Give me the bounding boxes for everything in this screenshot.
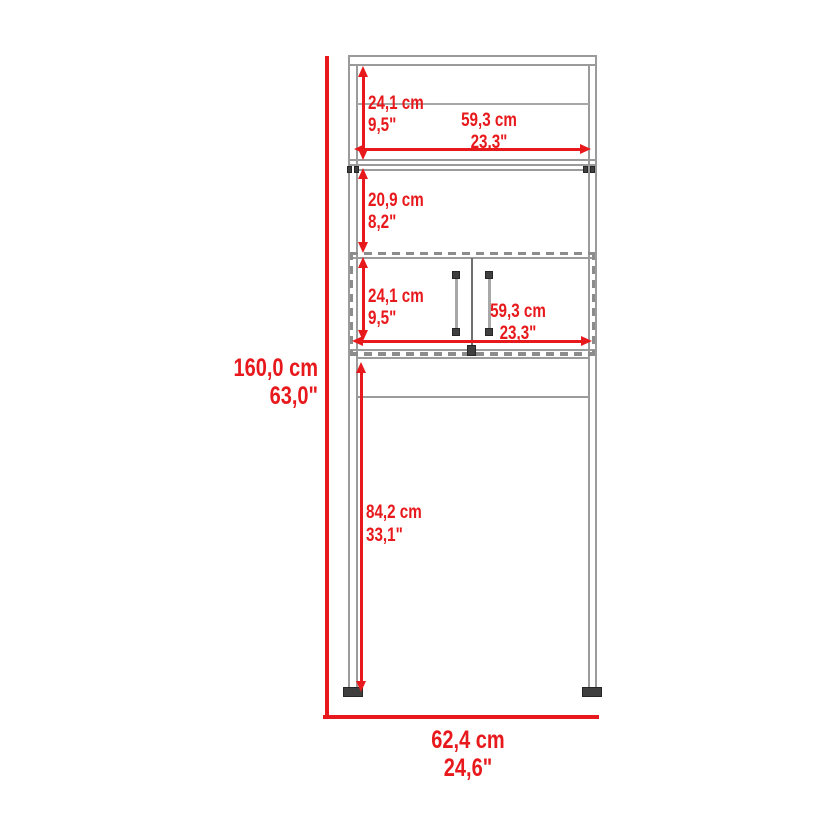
top-panel-top-edge xyxy=(348,55,597,57)
hutch-bottom-board-top xyxy=(349,159,597,161)
cabinet-width-label-in: 23,3" xyxy=(470,324,566,343)
open-shelf-height-label-in: 8,2" xyxy=(368,213,396,232)
hutch-height-label-in: 9,5" xyxy=(368,116,396,135)
dimension-diagram: 160,0 cm 63,0" 62,4 cm 24,6" 24,1 cm 9,5… xyxy=(0,0,840,840)
top-panel-bottom-edge xyxy=(349,64,596,66)
right-foot xyxy=(582,687,602,697)
hutch-width-label-in: 23,3" xyxy=(441,133,537,152)
arrow-down-icon xyxy=(358,242,368,253)
left-door-handle-cap xyxy=(452,271,460,279)
right-leg-outer-line xyxy=(595,55,597,689)
cabinet-dashed-right xyxy=(592,252,595,356)
clearance-height-label-in: 33,1" xyxy=(366,526,403,545)
open-shelf-height-label-cm: 20,9 cm xyxy=(368,191,424,210)
overall-width-label-cm: 62,4 cm xyxy=(412,728,524,753)
hutch-bottom-board-bottom xyxy=(349,164,597,166)
cabinet-height-dimension-line xyxy=(362,266,365,330)
hinge-rail-line xyxy=(357,169,589,171)
left-door-handle-cap xyxy=(452,328,460,336)
right-leg-inner-line xyxy=(588,64,590,689)
overall-width-label-in: 24,6" xyxy=(412,756,524,781)
overall-height-label-in: 63,0" xyxy=(192,384,318,409)
left-leg-outer-line xyxy=(348,55,350,689)
arrow-down-icon xyxy=(356,681,366,692)
hutch-height-label-cm: 24,1 cm xyxy=(368,94,424,113)
left-hinge-icon xyxy=(347,166,352,173)
right-hinge-icon xyxy=(590,166,595,173)
arrow-right-icon xyxy=(580,144,591,154)
back-rail-top-line xyxy=(357,357,589,359)
right-door-handle-cap xyxy=(485,271,493,279)
clearance-height-dimension-line xyxy=(360,371,363,682)
clearance-height-label-cm: 84,2 cm xyxy=(366,503,422,522)
right-hinge-icon xyxy=(583,166,588,173)
overall-height-dimension-line xyxy=(325,56,329,719)
door-latch-icon xyxy=(467,345,476,356)
hutch-width-label-cm: 59,3 cm xyxy=(441,111,537,130)
cabinet-height-label-in: 9,5" xyxy=(368,309,396,328)
overall-height-label-cm: 160,0 cm xyxy=(192,356,318,381)
open-shelf-height-dimension-line xyxy=(362,177,365,244)
cabinet-height-label-cm: 24,1 cm xyxy=(368,287,424,306)
cabinet-dashed-top xyxy=(350,252,595,255)
back-rail-bottom-line xyxy=(357,396,589,398)
arrow-right-icon xyxy=(581,336,592,346)
cabinet-width-label-cm: 59,3 cm xyxy=(470,302,566,321)
left-door-handle-bar xyxy=(455,278,458,330)
hutch-height-dimension-line xyxy=(362,75,365,151)
overall-width-dimension-line xyxy=(323,715,599,719)
